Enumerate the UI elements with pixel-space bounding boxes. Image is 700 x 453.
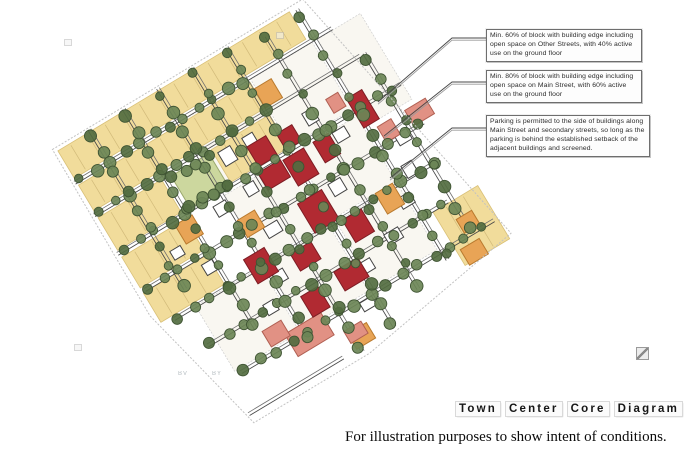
scan-artifact bbox=[64, 39, 72, 46]
street-tree bbox=[411, 136, 423, 148]
callout-other-streets-standard: Min. 60% of block with building edge inc… bbox=[486, 29, 642, 62]
scan-artifact bbox=[276, 32, 284, 39]
figure-caption: For illustration purposes to show intent… bbox=[345, 429, 667, 446]
street-tree bbox=[436, 178, 453, 195]
callout-parking-standard: Parking is permitted to the side of buil… bbox=[486, 115, 650, 157]
scan-artifact bbox=[74, 344, 82, 351]
scan-artifact-icon bbox=[636, 347, 649, 360]
title-word: Core bbox=[568, 402, 609, 416]
rotated-street-grid bbox=[51, 0, 527, 440]
diagram-title: Town Center Core Diagram bbox=[456, 402, 682, 416]
street bbox=[250, 359, 344, 416]
street bbox=[248, 356, 342, 413]
street-tree bbox=[382, 316, 398, 332]
street-tree bbox=[218, 233, 235, 250]
callout-main-street-standard: Min. 80% of block with building edge inc… bbox=[486, 70, 642, 103]
scanned-diagram-page: Min. 60% of block with building edge inc… bbox=[0, 0, 700, 453]
street-tree bbox=[408, 277, 425, 294]
scan-mark: BY bbox=[212, 371, 222, 377]
title-word: Diagram bbox=[615, 402, 682, 416]
site-plan-drawing bbox=[0, 0, 700, 453]
title-word: Center bbox=[506, 402, 562, 416]
scan-mark: BV bbox=[178, 371, 188, 377]
title-word: Town bbox=[456, 402, 500, 416]
street-tree bbox=[201, 335, 216, 350]
